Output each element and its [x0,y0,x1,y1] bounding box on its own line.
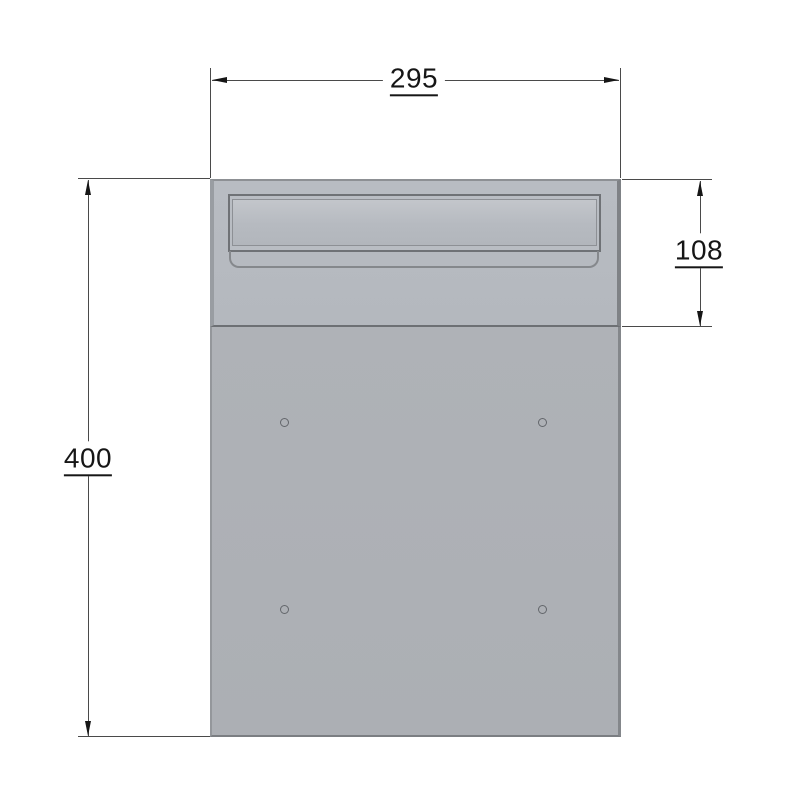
dim-total-height-extension-line-top [78,178,210,179]
dim-total-height-label: 400 [57,441,119,476]
panel-lower-section [210,327,621,737]
dim-width-extension-line-right [620,68,621,178]
dim-width-value: 295 [390,63,438,96]
screw-hole-top-right [538,418,547,427]
technical-drawing-canvas: 295 108 400 [0,0,800,800]
dim-total-height-arrow-down-icon [85,721,91,736]
dim-upper-height-label: 108 [668,233,730,268]
dim-upper-height-extension-line-bottom [622,326,712,327]
dim-width-arrow-right-icon [604,77,619,83]
letter-slot-recess-outline [229,251,599,268]
screw-hole-bottom-left [280,605,289,614]
dim-total-height-arrow-up-icon [85,180,91,195]
dim-upper-height-arrow-down-icon [697,311,703,326]
screw-hole-top-left [280,418,289,427]
dim-upper-height-extension-line-top [622,179,712,180]
dim-upper-height-value: 108 [675,235,723,268]
letter-slot-flap [232,199,597,246]
screw-hole-bottom-right [538,605,547,614]
dim-total-height-extension-line-bottom [78,736,210,737]
dim-total-height-value: 400 [64,443,112,476]
dim-width-label: 295 [383,61,445,96]
dim-width-arrow-left-icon [212,77,227,83]
dim-upper-height-arrow-up-icon [697,181,703,196]
letter-slot-frame [228,194,601,252]
dim-width-extension-line-left [210,68,211,178]
